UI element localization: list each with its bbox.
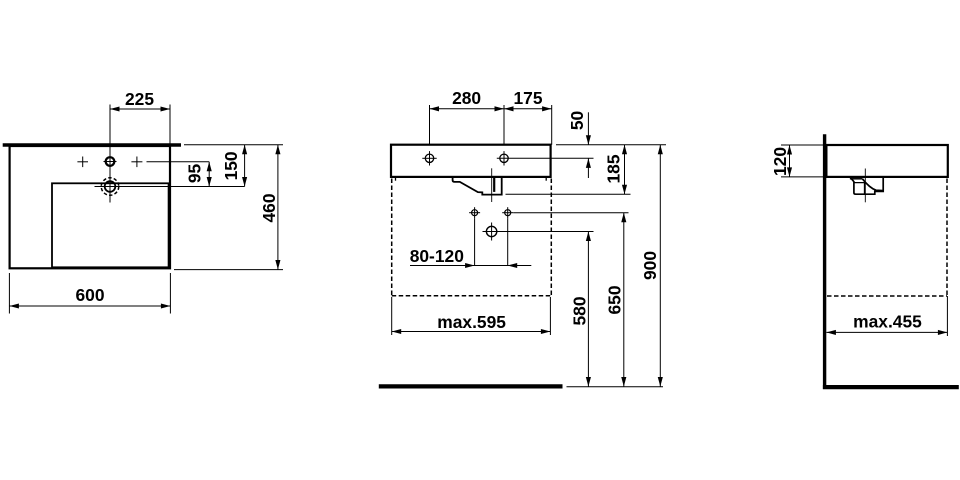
svg-text:120: 120 <box>770 147 790 176</box>
svg-text:175: 175 <box>513 88 542 108</box>
svg-text:50: 50 <box>567 111 587 130</box>
svg-text:225: 225 <box>125 89 154 109</box>
svg-text:max.595: max.595 <box>437 312 506 332</box>
svg-text:650: 650 <box>605 285 625 314</box>
svg-text:460: 460 <box>259 193 279 222</box>
svg-text:80-120: 80-120 <box>410 246 464 266</box>
svg-text:280: 280 <box>452 88 481 108</box>
svg-text:600: 600 <box>75 285 104 305</box>
svg-text:95: 95 <box>185 164 205 184</box>
svg-text:150: 150 <box>221 151 241 180</box>
svg-text:185: 185 <box>604 154 624 183</box>
svg-text:max.455: max.455 <box>853 312 922 332</box>
svg-text:900: 900 <box>640 251 660 280</box>
svg-text:580: 580 <box>570 296 590 325</box>
